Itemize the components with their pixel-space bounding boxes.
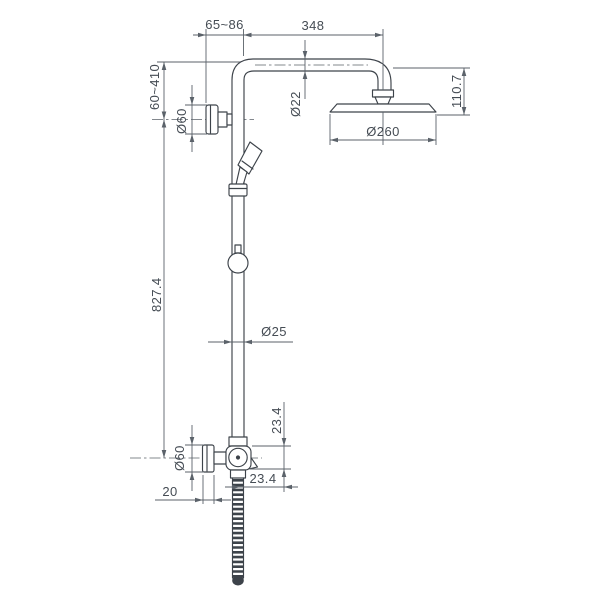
centerlines [130,65,368,458]
hand-shower-holder [229,184,247,196]
wall-distance-label: 65~86 [205,17,244,32]
lower-flange [203,445,215,472]
valve-dial-center [236,455,240,459]
bracket-height-range-label: 60~410 [147,64,162,110]
dimension-upper-flange-diameter: Ø60 [174,85,207,152]
arm-pipe-inner [244,71,378,90]
head-diameter-label: Ø260 [366,124,399,139]
dimension-arm-pipe-diameter: Ø22 [288,40,307,117]
lower-flange-diameter-label: Ø60 [172,445,187,471]
upper-flange-diameter-label: Ø60 [174,108,189,134]
dimension-column-pipe-diameter: Ø25 [208,324,293,344]
head-connector-nut [373,90,394,97]
hose-end-cap [232,576,244,586]
dimension-arm-length: 348 [302,18,383,90]
dimension-wall-distance: 65~86 [193,17,383,103]
valve-top-nut [229,437,247,446]
valve-vertical-offset-label: 23.4 [269,407,284,434]
head-plate [330,104,436,112]
arm-pipe-outer [232,59,391,90]
flexible-hose [232,478,244,586]
slider-stem [235,245,241,253]
upper-flange [206,105,218,134]
valve-horizontal-offset-label: 23.4 [250,471,277,486]
column-pipe-diameter-label: Ø25 [261,324,287,339]
arm-length-label: 348 [302,18,325,33]
upper-wall-bracket [206,105,232,134]
upper-bracket-clamp [227,114,232,125]
head-drop-label: 110.7 [449,74,464,108]
hose-nut [231,470,246,478]
rain-shower-head [330,90,436,112]
technical-drawing-canvas: 65~86 348 Ø22 110.7 Ø260 [0,0,600,600]
arm-pipe-diameter-label: Ø22 [288,91,303,117]
head-connector-cone [375,97,391,104]
flange-depth-label: 20 [162,484,177,499]
slider-wheel [228,253,248,273]
valve-inlet-connector [214,452,226,464]
column-length-label: 827.4 [149,277,164,312]
shower-system-dimension-drawing: 65~86 348 Ø22 110.7 Ø260 [0,0,600,600]
dimension-head-diameter: Ø260 [330,112,436,145]
shower-column-and-arm [232,59,391,437]
upper-bracket-arm [218,112,227,127]
slider-knob [228,245,248,273]
